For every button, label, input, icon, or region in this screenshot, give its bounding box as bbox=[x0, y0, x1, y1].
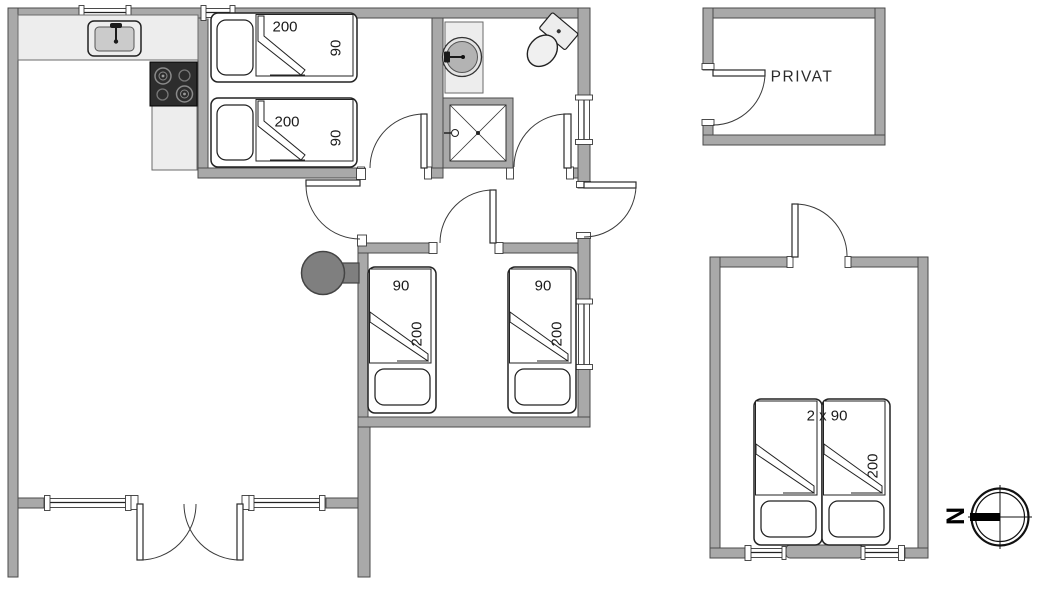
door-entrance-east bbox=[577, 182, 637, 239]
floor-plan-drawing: 200 90 200 90 90 200 90 200 2 x 90 200 P… bbox=[0, 0, 1052, 604]
bed-size-label: 2 x 90 bbox=[807, 408, 848, 425]
window-living-south-1 bbox=[45, 496, 132, 511]
bed-length-label: 200 bbox=[272, 19, 297, 36]
floor-plan-canvas: 200 90 200 90 90 200 90 200 2 x 90 200 P… bbox=[0, 0, 1052, 604]
door-hall-living bbox=[306, 169, 367, 247]
window-bedroom2-east bbox=[576, 299, 593, 370]
bedroom1-beds: 200 90 200 90 bbox=[211, 13, 357, 167]
privat-room-label: PRIVAT bbox=[771, 69, 834, 86]
window-annex-south-1 bbox=[745, 546, 786, 561]
door-bathroom bbox=[507, 114, 574, 179]
bed-length-label: 200 bbox=[865, 453, 882, 478]
annex-beds: 2 x 90 200 bbox=[754, 399, 890, 545]
window-living-south-2 bbox=[249, 496, 326, 511]
bed-length-label: 200 bbox=[409, 321, 426, 346]
bed-width-label: 90 bbox=[328, 40, 345, 57]
washbasin-icon bbox=[443, 38, 482, 77]
kitchen bbox=[18, 15, 198, 170]
door-annex bbox=[787, 204, 851, 268]
compass-rose-icon: N bbox=[942, 485, 1032, 549]
kitchen-cabinet bbox=[152, 106, 197, 170]
bed-length-label: 200 bbox=[549, 321, 566, 346]
kitchen-sink-icon bbox=[88, 21, 141, 56]
cooktop-icon bbox=[150, 62, 197, 106]
door-bedroom2 bbox=[429, 190, 503, 254]
main-house-walls bbox=[8, 8, 590, 577]
bedroom2-beds: 90 200 90 200 bbox=[368, 267, 576, 413]
compass-north-label: N bbox=[942, 507, 970, 525]
door-terrace-double bbox=[131, 496, 249, 561]
bed-width-label: 90 bbox=[393, 278, 410, 295]
compass-north-pointer bbox=[970, 513, 1000, 521]
door-bedroom1 bbox=[358, 114, 432, 179]
bed-width-label: 90 bbox=[535, 278, 552, 295]
bed-width-label: 90 bbox=[328, 130, 345, 147]
toilet-icon bbox=[518, 12, 578, 74]
window-annex-south-2 bbox=[861, 546, 905, 561]
bathroom bbox=[443, 12, 579, 168]
bed-length-label: 200 bbox=[274, 114, 299, 131]
door-privat bbox=[702, 64, 765, 126]
shower-icon bbox=[443, 98, 513, 168]
window-bathroom-east bbox=[576, 95, 593, 145]
wood-stove-icon bbox=[302, 252, 360, 295]
window-sill-block bbox=[786, 545, 863, 558]
